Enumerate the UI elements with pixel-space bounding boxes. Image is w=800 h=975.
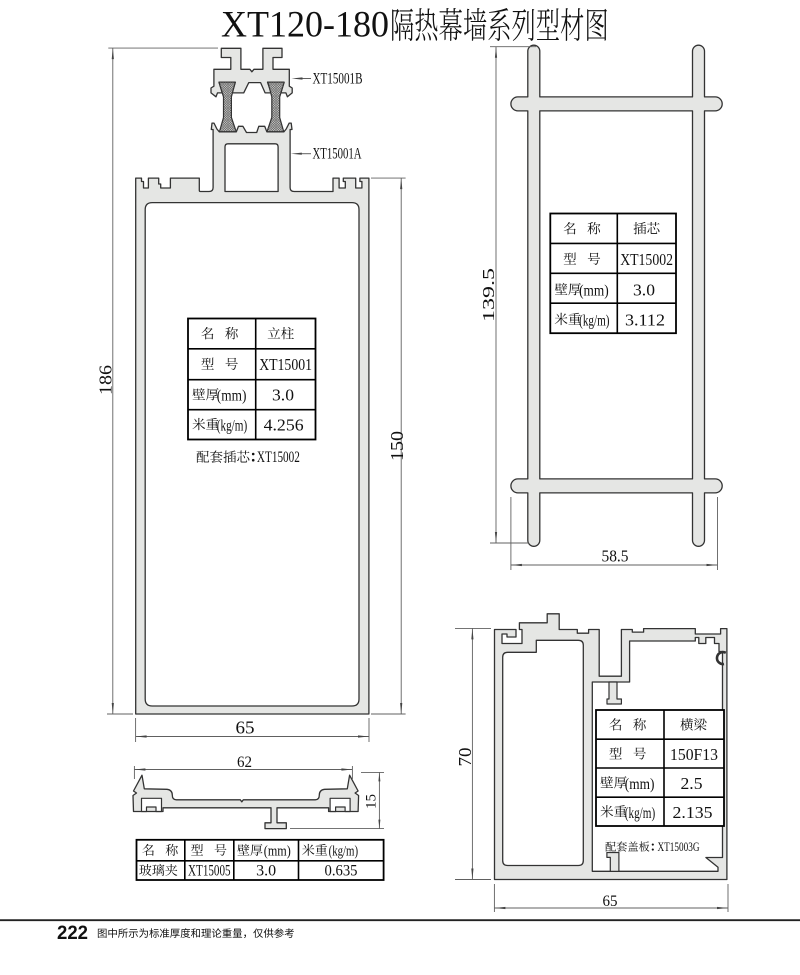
svg-text:XT15001A: XT15001A bbox=[313, 146, 362, 163]
svg-text:139.5: 139.5 bbox=[479, 268, 498, 322]
svg-text:3.0: 3.0 bbox=[272, 386, 294, 405]
svg-text:(kg/m): (kg/m) bbox=[217, 418, 247, 435]
svg-text:XT15002: XT15002 bbox=[257, 449, 300, 466]
svg-text:(mm): (mm) bbox=[264, 844, 291, 860]
svg-text:150: 150 bbox=[387, 431, 407, 461]
svg-text:3.0: 3.0 bbox=[256, 863, 276, 880]
svg-text:15: 15 bbox=[364, 794, 380, 809]
svg-text:XT15001B: XT15001B bbox=[313, 71, 363, 88]
svg-text:XT15002: XT15002 bbox=[620, 250, 673, 269]
svg-text:222: 222 bbox=[57, 923, 88, 944]
svg-text:4.256: 4.256 bbox=[264, 416, 304, 435]
svg-text:(kg/m): (kg/m) bbox=[625, 805, 655, 822]
svg-text:70: 70 bbox=[455, 747, 475, 766]
svg-text:62: 62 bbox=[237, 754, 252, 771]
svg-text:2.5: 2.5 bbox=[681, 774, 703, 793]
svg-text:65: 65 bbox=[236, 718, 255, 738]
svg-text:3.112: 3.112 bbox=[625, 310, 665, 329]
svg-text:0.635: 0.635 bbox=[325, 863, 358, 880]
svg-text:150F13: 150F13 bbox=[670, 745, 718, 764]
svg-text:186: 186 bbox=[96, 365, 116, 395]
svg-text:3.0: 3.0 bbox=[633, 281, 655, 300]
svg-text:2.135: 2.135 bbox=[673, 803, 713, 822]
svg-text:XT15005: XT15005 bbox=[188, 863, 231, 880]
svg-text:(kg/m): (kg/m) bbox=[579, 312, 609, 329]
svg-text:(mm): (mm) bbox=[217, 388, 247, 405]
svg-text:65: 65 bbox=[603, 893, 618, 910]
svg-text:XT120-180: XT120-180 bbox=[221, 5, 389, 46]
svg-text:58.5: 58.5 bbox=[602, 547, 629, 566]
svg-text:(mm): (mm) bbox=[579, 283, 609, 300]
svg-text:XT15003G: XT15003G bbox=[658, 839, 700, 854]
svg-text:(mm): (mm) bbox=[625, 776, 655, 793]
svg-text:XT15001: XT15001 bbox=[259, 355, 312, 374]
svg-text:(kg/m): (kg/m) bbox=[329, 844, 359, 860]
